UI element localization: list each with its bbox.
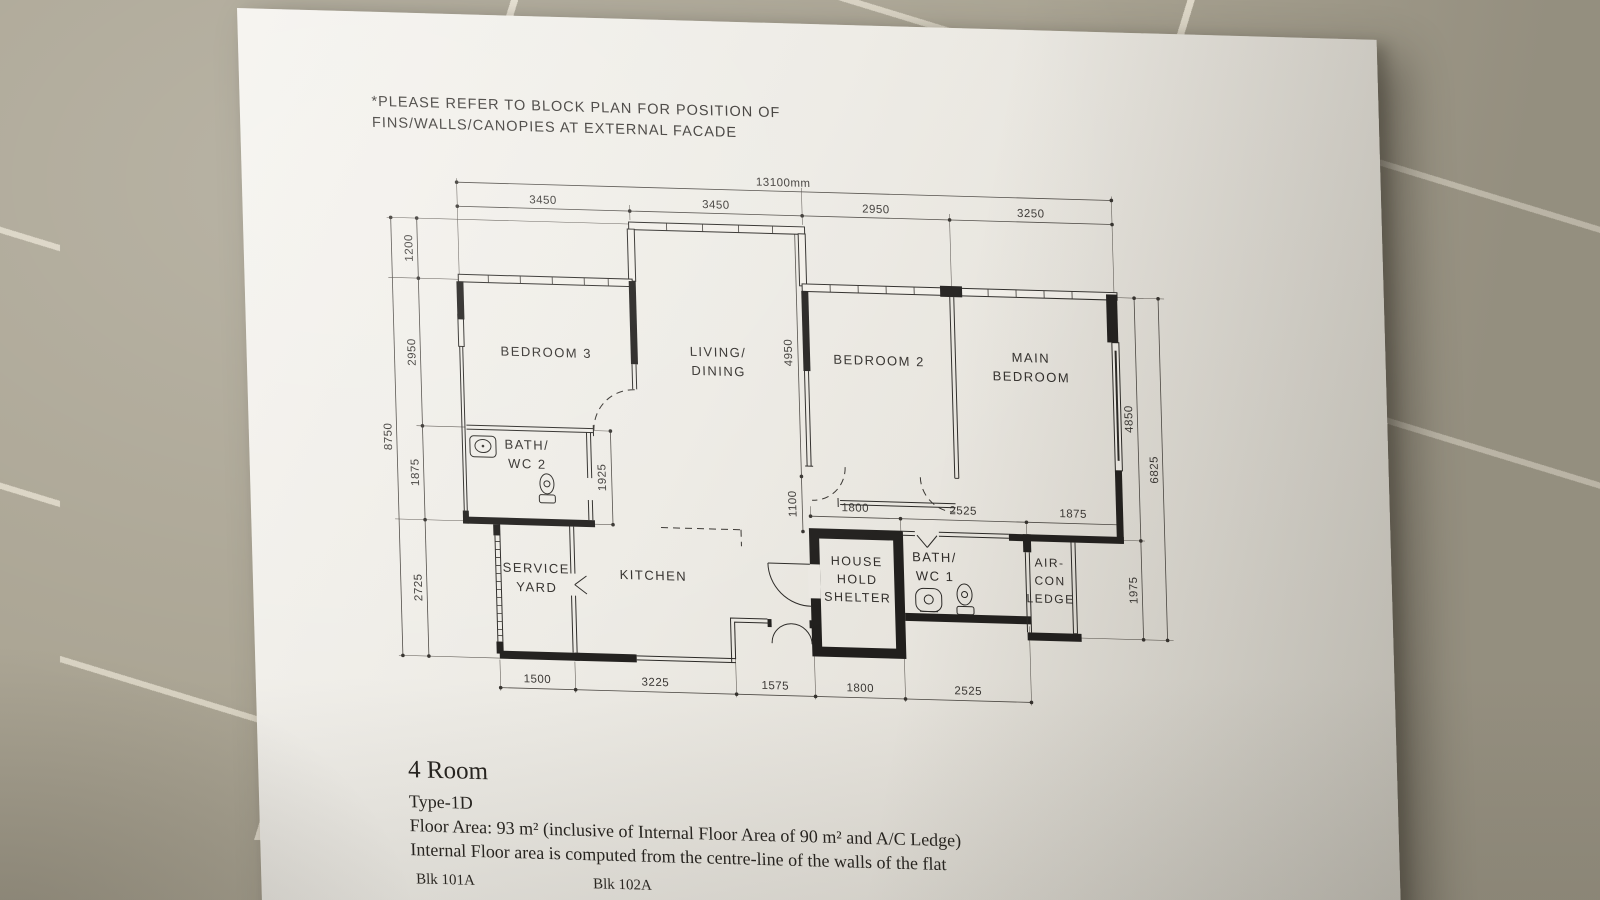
- floor-plan-sheet: *PLEASE REFER TO BLOCK PLAN FOR POSITION…: [237, 8, 1405, 900]
- room-label-ac-3: LEDGE: [1026, 591, 1075, 606]
- dim-right-overall: 6825: [1148, 456, 1161, 484]
- room-label-service-1: SERVICE: [502, 560, 570, 577]
- room-label-service-2: YARD: [516, 579, 558, 595]
- dim-right-lower: 1975: [1128, 576, 1141, 604]
- dim-living-height: 4950: [783, 339, 796, 367]
- plan-footer: 4 Room Type-1D Floor Area: 93 m² (inclus…: [408, 753, 962, 877]
- room-label-bedroom2: BEDROOM 2: [833, 352, 925, 370]
- dim-left-1: 1200: [403, 234, 416, 262]
- floor-plan-drawing: 13100mm 3450 3450 2950 3250 8750 1200 29…: [341, 141, 1198, 785]
- dim-bottom-2: 3225: [641, 677, 669, 690]
- room-label-hhs-3: SHELTER: [824, 590, 892, 606]
- room-label-hhs-2: HOLD: [837, 572, 878, 587]
- dim-top-1: 3450: [529, 194, 557, 207]
- room-label-ac-1: AIR-: [1034, 555, 1064, 570]
- room-label-main-2: BEDROOM: [992, 368, 1070, 385]
- dim-entry-height: 1100: [787, 490, 800, 517]
- dim-top-4: 3250: [1017, 208, 1045, 221]
- room-label-living-1: LIVING/: [690, 344, 747, 361]
- room-label-bath2-2: WC 2: [508, 456, 547, 472]
- dim-mid-1: 1800: [841, 502, 869, 515]
- room-label-bath1-2: WC 1: [916, 568, 955, 584]
- room-label-hhs-1: HOUSE: [831, 554, 883, 569]
- dim-right-upper: 4850: [1123, 405, 1136, 433]
- room-label-kitchen: KITCHEN: [619, 567, 687, 584]
- dim-bottom-1: 1500: [523, 673, 551, 686]
- bath1-toilet-icon: [957, 584, 973, 605]
- partition-walls: [458, 283, 1079, 672]
- dim-top-2: 3450: [702, 199, 730, 212]
- room-label-ac-2: CON: [1034, 573, 1066, 588]
- room-label-bedroom3: BEDROOM 3: [500, 343, 592, 361]
- block-label-101a: Blk 101A: [416, 871, 475, 890]
- dim-bottom-5: 2525: [954, 685, 982, 698]
- dim-left-overall: 8750: [382, 422, 395, 450]
- dim-overall-width: 13100mm: [756, 177, 811, 191]
- room-label-living-2: DINING: [691, 363, 746, 380]
- dim-bottom-3: 1575: [761, 680, 789, 693]
- dim-mid-2: 2525: [949, 505, 977, 518]
- bath1-sink-icon: [915, 588, 942, 612]
- dim-left-4: 2725: [413, 573, 426, 601]
- room-labels: BEDROOM 3 LIVING/ DINING BEDROOM 2 MAIN …: [496, 335, 1076, 610]
- bath2-toilet-icon: [540, 474, 555, 494]
- dim-top-3: 2950: [862, 204, 890, 217]
- block-label-102a: Blk 102A: [593, 876, 652, 895]
- room-label-bath1-1: BATH/: [912, 549, 957, 565]
- dim-left-2: 2950: [406, 338, 419, 366]
- dim-bottom-4: 1800: [846, 682, 874, 695]
- dim-mid-3: 1875: [1059, 508, 1087, 521]
- room-label-bath2-1: BATH/: [504, 437, 549, 453]
- dim-left-3: 1875: [409, 458, 422, 486]
- block-plan-note: *PLEASE REFER TO BLOCK PLAN FOR POSITION…: [371, 92, 781, 146]
- photo-of-floor-plan-on-tiled-floor: *PLEASE REFER TO BLOCK PLAN FOR POSITION…: [0, 0, 1600, 900]
- room-label-main-1: MAIN: [1011, 350, 1050, 366]
- dim-bath2-height: 1925: [596, 463, 609, 491]
